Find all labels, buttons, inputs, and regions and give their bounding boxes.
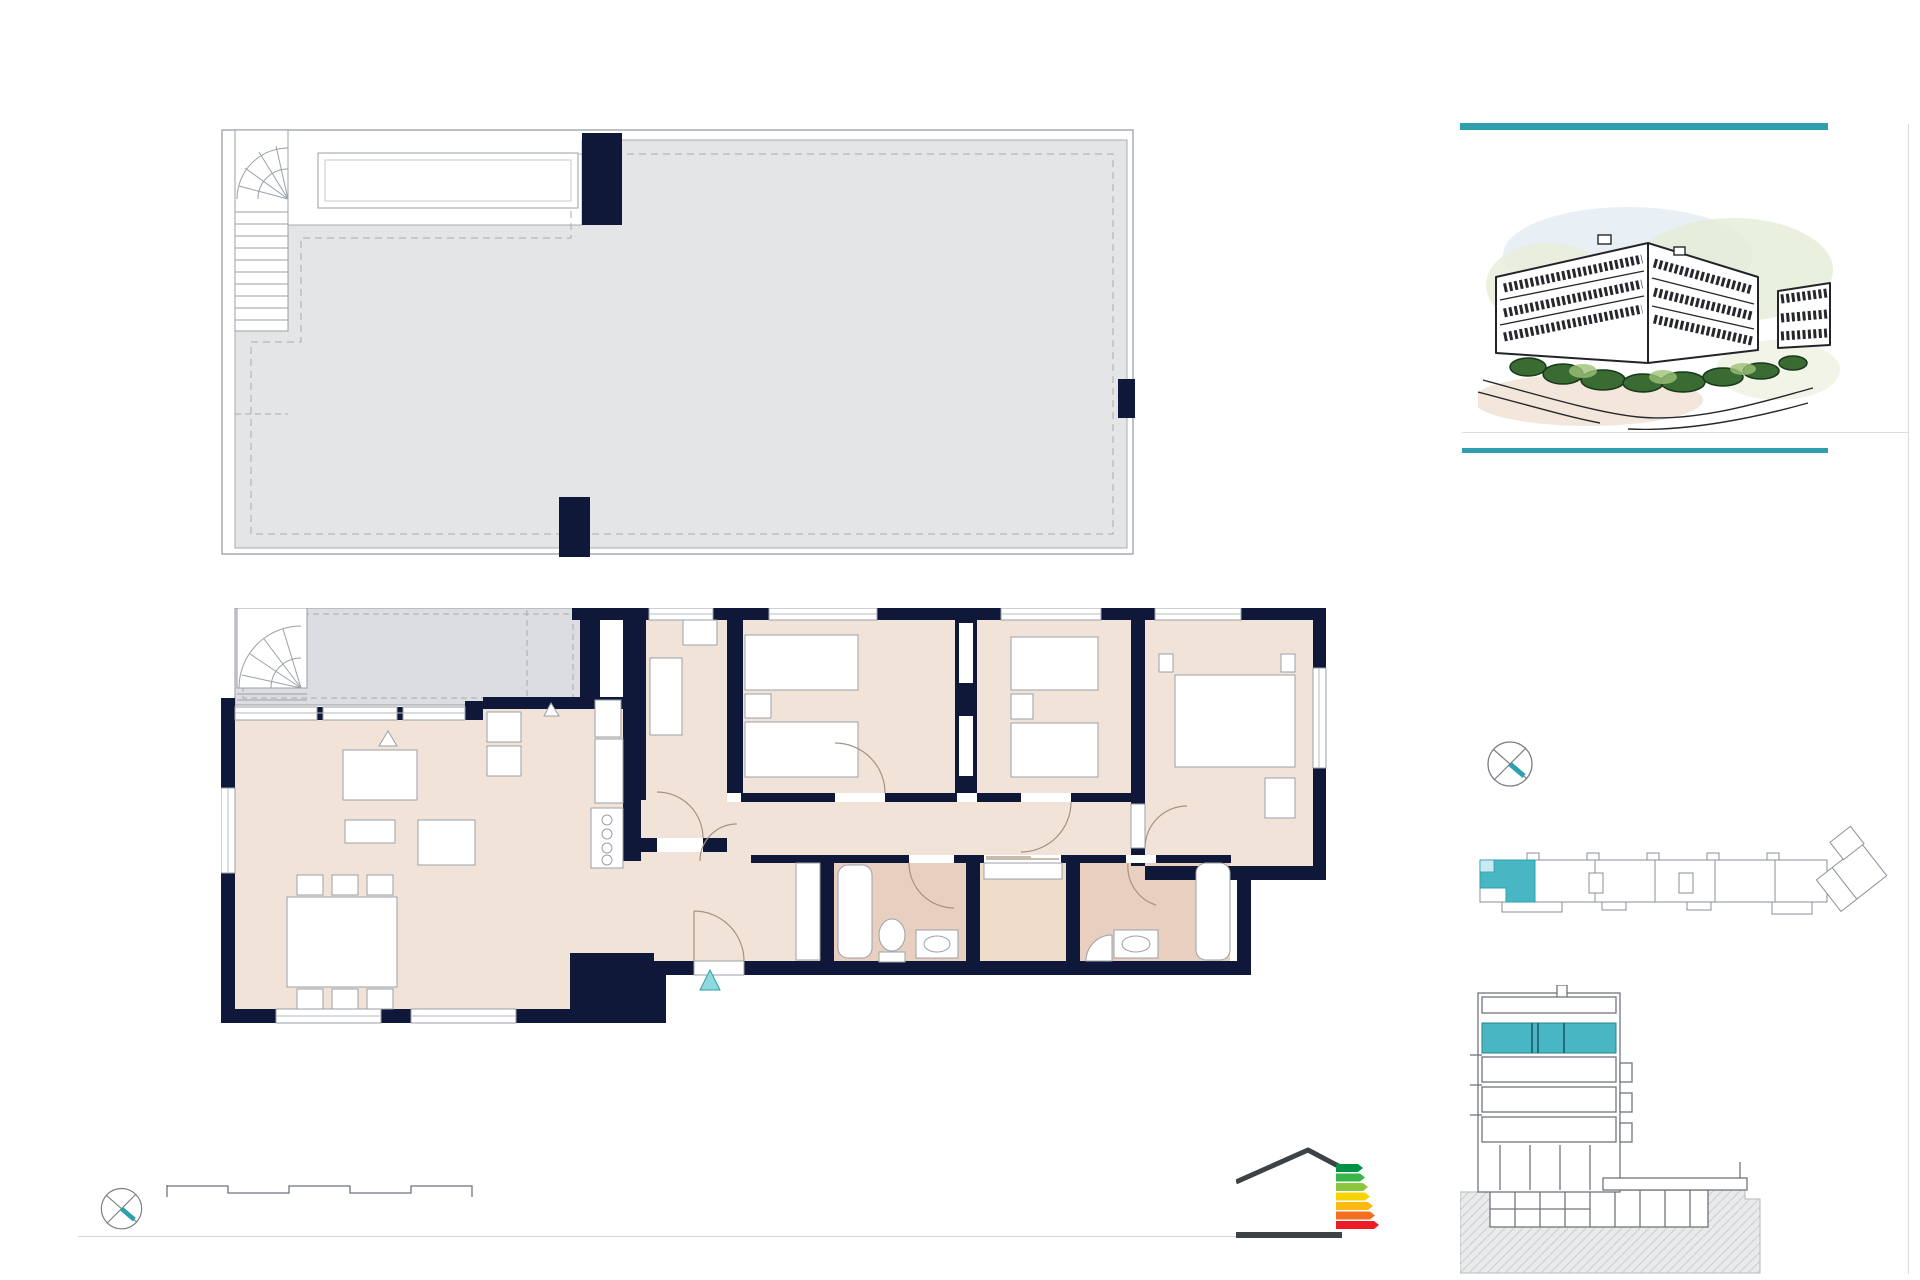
- roof-plan: [221, 124, 1136, 560]
- superficies-rule: [1462, 448, 1828, 453]
- header-teal-bar: [1460, 123, 1828, 130]
- compass-icon: [94, 1183, 160, 1249]
- energy-logo: [1236, 1146, 1381, 1280]
- superficies-panel: [1462, 456, 1829, 459]
- roof-core-wall: [582, 133, 622, 225]
- building-section: [1460, 985, 1908, 1280]
- building-section-svg: [1460, 985, 1908, 1280]
- main-floor-plan: [221, 608, 1335, 1038]
- building-illustration: [1478, 185, 1840, 430]
- footer-divider: [78, 1236, 1238, 1237]
- divider-line: [1462, 432, 1908, 433]
- energy-scale-arrows: [1336, 1164, 1379, 1229]
- energy-logo-svg: [1236, 1146, 1381, 1280]
- site-key-plan-svg: [1472, 818, 1912, 930]
- scale-bar-steps: [167, 1185, 472, 1197]
- scale-bar-svg: [165, 1166, 495, 1218]
- plan-sheet: [0, 0, 1920, 1280]
- section-structure: [1470, 985, 1747, 1227]
- roof-plan-svg: [221, 124, 1136, 560]
- house-base: [1236, 1232, 1342, 1238]
- compass-bottom: [94, 1183, 160, 1249]
- building-illustration-svg: [1478, 185, 1840, 430]
- site-key-plan: [1472, 818, 1912, 930]
- house-roof: [1236, 1150, 1342, 1182]
- scale-bar: [165, 1166, 495, 1218]
- page-border-right: [1908, 124, 1909, 1274]
- highlighted-floor: [1482, 1023, 1616, 1053]
- main-floor-plan-svg: [221, 608, 1335, 1038]
- roof-skylight: [318, 153, 578, 208]
- roof-stair: [235, 130, 288, 331]
- compass-right: [1480, 736, 1552, 808]
- compass-icon: [1480, 736, 1552, 808]
